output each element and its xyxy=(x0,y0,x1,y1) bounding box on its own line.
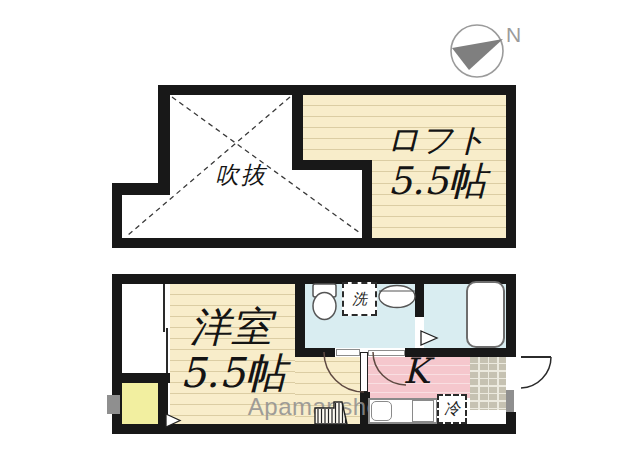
western-room-size-label: 5.5帖 xyxy=(169,353,297,394)
room-door-arc xyxy=(324,352,364,392)
toilet-bowl xyxy=(313,293,336,320)
washing-machine-label: 洗 xyxy=(352,290,367,309)
kitchen-label: K xyxy=(396,354,436,389)
floor-plan-canvas: 洗 冷 Apamanshop N 吹抜 ロフト xyxy=(0,0,640,455)
bath-door-triangle-icon xyxy=(421,331,437,345)
north-label: N xyxy=(506,23,521,46)
compass-needle xyxy=(452,39,503,70)
front-door-arc xyxy=(521,357,551,388)
wash-basin xyxy=(379,286,415,308)
washing-machine-box: 洗 xyxy=(342,282,377,316)
refrigerator-box: 冷 xyxy=(437,394,467,424)
loft-label: ロフト xyxy=(377,123,497,156)
loft-size-label: 5.5帖 xyxy=(377,162,497,200)
bathtub xyxy=(467,282,504,347)
western-room-label: 洋室 xyxy=(171,307,291,348)
kitchen-stove xyxy=(412,400,434,422)
vector-overlay: N xyxy=(0,0,640,455)
refrigerator-label: 冷 xyxy=(444,399,460,420)
step-triangle-icon xyxy=(166,414,180,427)
kitchen-sink xyxy=(371,401,392,421)
atrium-label: 吹抜 xyxy=(201,163,281,187)
